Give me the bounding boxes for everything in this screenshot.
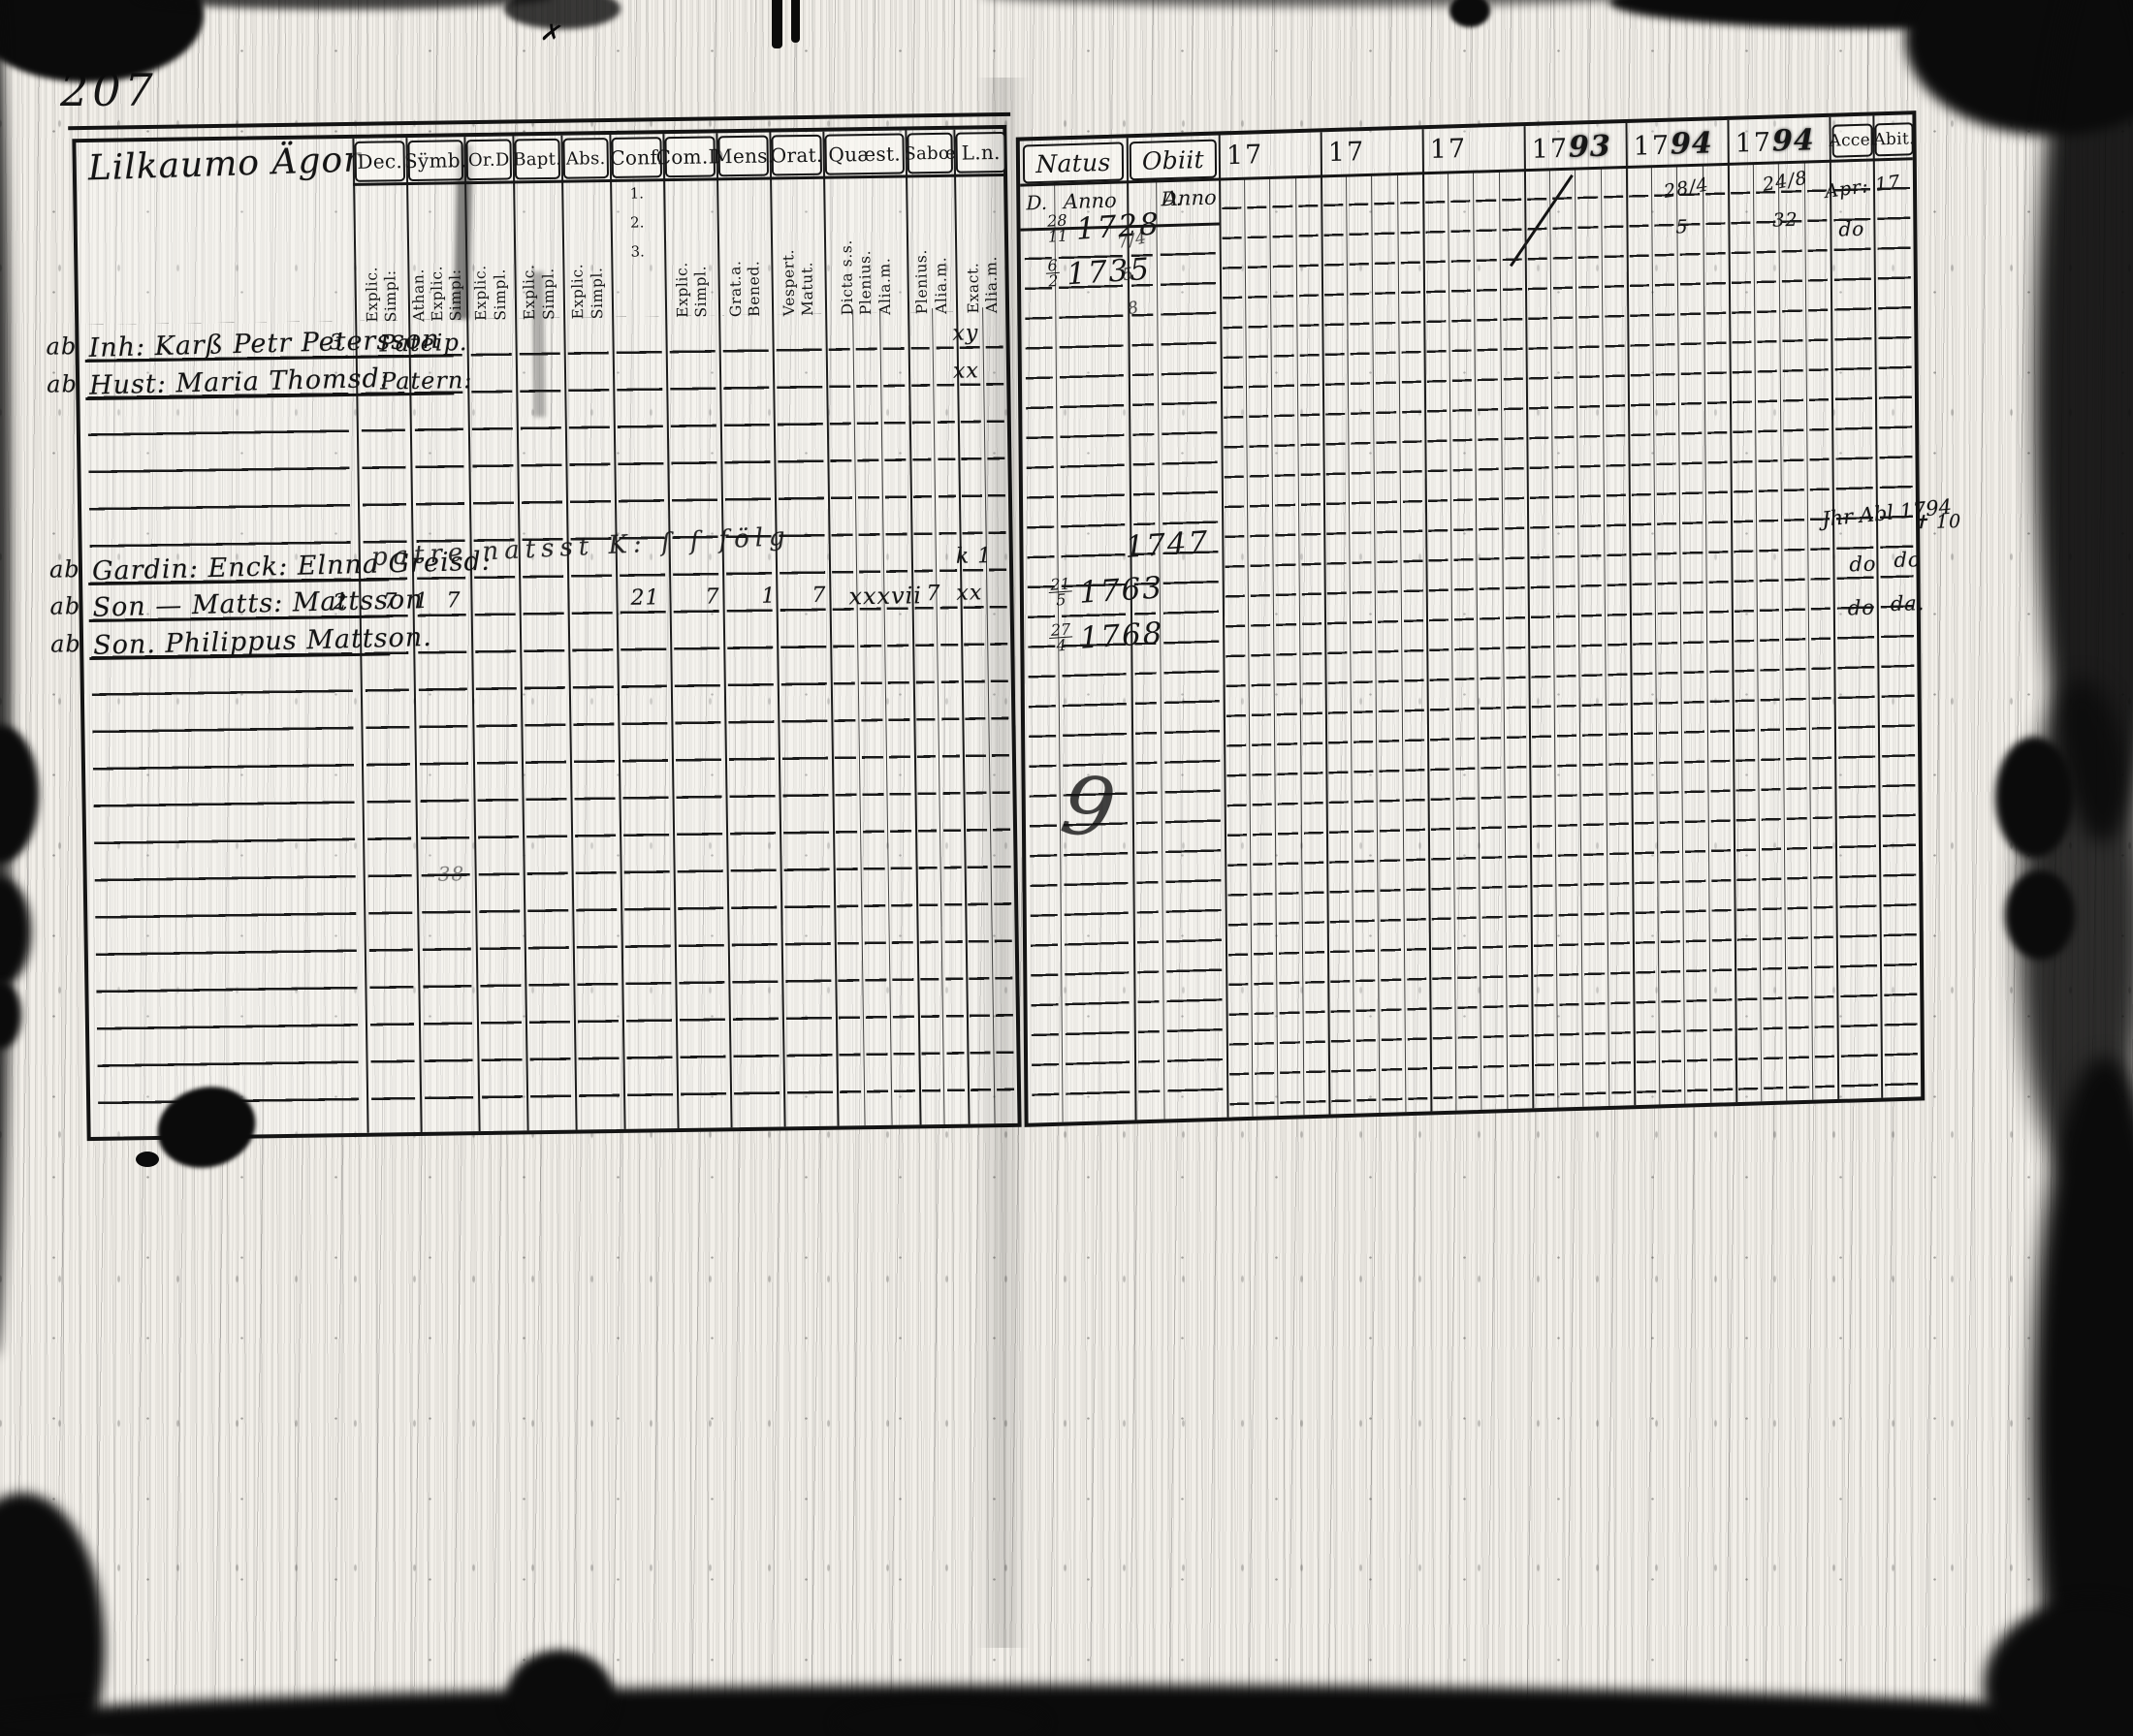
column-header-label: Mens. bbox=[713, 143, 775, 168]
scan-blotch bbox=[506, 1650, 615, 1736]
accel-header: Accel bbox=[1831, 123, 1872, 157]
year-header-3: 1793 bbox=[1532, 129, 1611, 165]
right-page: NatusObiitD.D.AnnoAnno171717179317941794… bbox=[1016, 110, 1926, 1127]
column-header-mens: Mens. bbox=[717, 136, 769, 177]
subheader-line: Matut. bbox=[798, 182, 815, 316]
ink-blot bbox=[136, 1152, 159, 1167]
year-printed: 17 bbox=[1430, 134, 1468, 165]
subheader-line: Simpl: bbox=[446, 187, 463, 321]
row-dashes-name bbox=[86, 321, 359, 1133]
scan-corner-dark bbox=[0, 1493, 105, 1736]
natus-anno-value: 1735 bbox=[1066, 252, 1151, 293]
subheader-line: Explic. bbox=[568, 185, 586, 319]
ditto-mark: do bbox=[1894, 548, 1921, 572]
left-page-script-title: Lilkaumo Ägor bbox=[87, 140, 362, 188]
column-header-label: Dec. bbox=[357, 149, 402, 174]
column-header-comd: Com.D bbox=[664, 136, 716, 177]
column-subheader-dec: Explic.Simpl: bbox=[353, 188, 408, 323]
column-subheader-comd: Explic.Simpl. bbox=[663, 183, 718, 318]
left-page: Lilkaumo Ägor 38 Dec.Explic.Simpl:Sÿmb.A… bbox=[72, 125, 1021, 1141]
year-handwritten: 93 bbox=[1569, 129, 1611, 164]
scan-edge-dark bbox=[0, 0, 12, 1357]
subheader-line: Simpl. bbox=[588, 185, 605, 319]
column-subheader-sabo: Plenius.Alia.m. bbox=[906, 180, 956, 315]
column-header-quaest: Quæst. bbox=[824, 133, 905, 174]
scan-blotch bbox=[1995, 737, 2073, 858]
communion-mark-1794a: 5 bbox=[1675, 216, 1688, 237]
margin-note-ab: ab bbox=[46, 332, 77, 360]
entry-mark-orat: 7 bbox=[812, 584, 826, 608]
margin-note-ab: ab bbox=[49, 555, 80, 583]
row-dashes-abit bbox=[1877, 159, 1918, 1093]
abit-cross-mark: ✝ 10 bbox=[1913, 511, 1961, 533]
row-dashes bbox=[776, 314, 833, 1123]
scan-blotch bbox=[0, 0, 204, 82]
year-printed: 17 bbox=[1226, 140, 1264, 171]
column-subheader-abs: Explic.Simpl. bbox=[561, 185, 612, 320]
entry-mark-simb: Patern: bbox=[380, 366, 473, 395]
entry-mark-sabo: 7 bbox=[926, 582, 940, 606]
margin-note-ab: ab bbox=[49, 593, 80, 620]
date-fraction: 215 bbox=[1048, 577, 1073, 609]
margin-note-ab: ab bbox=[47, 370, 78, 397]
year-header-4: 1794 bbox=[1634, 126, 1713, 162]
column-subheader-mens: Grat.a.Bened. bbox=[716, 183, 772, 318]
subheader-line: Simpl. bbox=[491, 187, 508, 321]
subheader-line: 1. bbox=[629, 184, 644, 202]
scan-bottom-dark bbox=[0, 1685, 2133, 1736]
subheader-line: Dicta s.s. bbox=[838, 181, 855, 315]
subheader-line: 3. bbox=[630, 242, 645, 260]
left-ledger-table: Lilkaumo Ägor 38 Dec.Explic.Simpl:Sÿmb.A… bbox=[72, 125, 1021, 1141]
subheader-line: Grat.a. bbox=[726, 183, 744, 317]
obiit-anno-header: Anno bbox=[1162, 186, 1218, 211]
scan-blotch bbox=[772, 0, 782, 48]
scan-blotch bbox=[1449, 0, 1490, 27]
subheader-line: Explic. bbox=[428, 188, 445, 322]
date-fraction: 2811 bbox=[1045, 212, 1070, 244]
ditto-mark: da. bbox=[1891, 591, 1926, 615]
column-header-dec: Dec. bbox=[354, 141, 405, 182]
date-fraction: 274 bbox=[1049, 621, 1074, 653]
abit-header: Abit. bbox=[1874, 122, 1913, 156]
column-header-label: Sabœ bbox=[904, 142, 956, 164]
subheader-line: Bened. bbox=[745, 183, 762, 317]
subheader-line: Explic. bbox=[673, 184, 690, 318]
entry-mark-quaest: xxxvii bbox=[848, 583, 922, 611]
entry-mark-comd: 7 bbox=[705, 585, 719, 610]
row-dashes-natus-anno bbox=[1059, 227, 1130, 1118]
scan-blotch bbox=[979, 0, 1658, 7]
column-subheader-ord: Explic.Simpl. bbox=[464, 186, 515, 321]
year-handwritten: 94 bbox=[1772, 123, 1815, 158]
entry-mark-ord: 1 bbox=[414, 589, 429, 614]
natus-anno-value: 1747 bbox=[1125, 525, 1210, 566]
subheader-line: Explic. bbox=[471, 187, 489, 321]
entry-mark-conf: 21 bbox=[630, 586, 659, 611]
subheader-line: Alia.m. bbox=[932, 180, 949, 314]
column-header-abs: Abs. bbox=[562, 138, 609, 179]
subheader-line: Plenius. bbox=[856, 181, 874, 315]
year-printed: 17 bbox=[1735, 128, 1773, 159]
row-dashes bbox=[360, 320, 415, 1129]
column-header-label: Bapt. bbox=[513, 148, 561, 170]
year-header-0: 17 bbox=[1226, 140, 1264, 171]
date-fraction: 62 bbox=[1045, 258, 1061, 289]
column-subheader-quaest: Dicta s.s.Plenius.Alia.m. bbox=[823, 180, 907, 315]
column-subheader-simb: Athan.Explic.Simpl: bbox=[406, 187, 466, 322]
year-printed: 17 bbox=[1532, 134, 1570, 165]
subheader-line: Athan. bbox=[409, 188, 427, 322]
year-printed: 17 bbox=[1328, 137, 1366, 168]
column-header-label: Sÿmb. bbox=[404, 148, 467, 173]
natus-anno-value: 1768 bbox=[1079, 615, 1164, 656]
column-header-label: Quæst. bbox=[828, 142, 901, 167]
year-header-5: 1794 bbox=[1735, 123, 1815, 159]
entry-mark-dec: 3 bbox=[329, 331, 343, 355]
scan-corner-dark bbox=[1984, 1599, 2133, 1736]
column-header-conf: Conf. bbox=[611, 137, 662, 178]
column-subheader-orat: Vespert.Matut. bbox=[770, 182, 825, 317]
column-header-orat: Orat. bbox=[771, 135, 822, 176]
book-gutter-shadow bbox=[975, 78, 1030, 1648]
column-header-label: Or.D bbox=[468, 149, 510, 171]
scan-blotch bbox=[504, 0, 621, 29]
year-printed: 17 bbox=[1634, 131, 1671, 162]
subheader-line: Simpl. bbox=[539, 186, 557, 320]
ditto-mark: do bbox=[1849, 552, 1876, 577]
abit-mark-row1: do bbox=[1838, 217, 1864, 241]
column-header-ord: Or.D bbox=[465, 139, 512, 180]
entry-mark-simb: 7 bbox=[383, 590, 398, 615]
subheader-line: Simpl: bbox=[381, 188, 398, 322]
year-handwritten: 94 bbox=[1671, 126, 1713, 161]
subheader-line: Explic. bbox=[520, 186, 537, 320]
ditto-mark: do bbox=[1848, 596, 1875, 620]
column-header-sabo: Sabœ bbox=[907, 133, 953, 174]
natus-entry: 1747 bbox=[1125, 525, 1210, 566]
natus-entry: 621735 bbox=[1045, 252, 1152, 294]
subheader-line: Alia.m. bbox=[875, 181, 893, 315]
scan-blotch bbox=[791, 0, 800, 43]
natus-anno-value: 1763 bbox=[1078, 571, 1163, 612]
entry-mark-mens: 1 bbox=[761, 584, 776, 609]
column-subheader-conf: 1.2.3. bbox=[610, 184, 665, 319]
scan-blotch bbox=[0, 725, 39, 863]
entry-mark-simb: Pateip. bbox=[379, 329, 467, 357]
row-dashes bbox=[616, 316, 673, 1125]
scan-blotch bbox=[0, 981, 21, 1049]
row-dashes bbox=[669, 315, 726, 1124]
subheader-line: Vespert. bbox=[780, 182, 797, 316]
right-ledger-table: NatusObiitD.D.AnnoAnno171717179317941794… bbox=[1016, 110, 1926, 1127]
row-dashes-accel bbox=[1833, 161, 1878, 1095]
natus-header: Natus bbox=[1023, 142, 1124, 183]
obiit-header: Obiit bbox=[1130, 140, 1217, 181]
row-dashes bbox=[722, 315, 780, 1124]
subheader-line: Simpl. bbox=[691, 183, 709, 317]
entry-mark-dec: 2 bbox=[333, 590, 347, 615]
natus-entry: 2741768 bbox=[1049, 615, 1165, 658]
column-header-simb: Sÿmb. bbox=[407, 140, 463, 181]
year-header-1: 17 bbox=[1328, 137, 1366, 168]
scan-blotch bbox=[0, 877, 31, 986]
column-subheader-bapt: Explic.Simpl. bbox=[513, 186, 563, 321]
subheader-line: Explic. bbox=[363, 189, 380, 323]
communion-mark-1794b: 32 bbox=[1772, 209, 1798, 232]
subheader-line: 2. bbox=[630, 213, 645, 231]
row-dashes bbox=[413, 319, 473, 1128]
column-header-label: Orat. bbox=[771, 143, 823, 168]
entry-mark-bapt: 7 bbox=[446, 589, 461, 614]
subheader-line: Plenius. bbox=[912, 180, 930, 314]
column-header-label: Abs. bbox=[566, 148, 606, 170]
year-header-2: 17 bbox=[1430, 134, 1468, 165]
row-dashes-obiit-anno bbox=[1161, 225, 1224, 1116]
scanned-ledger-page: 207 ✗ Lilkaumo Ägor 38 Dec.Explic.Simpl:… bbox=[0, 0, 2133, 1736]
scan-blotch bbox=[2005, 870, 2075, 960]
column-header-bapt: Bapt. bbox=[514, 139, 560, 180]
margin-note-ab: ab bbox=[50, 630, 81, 657]
